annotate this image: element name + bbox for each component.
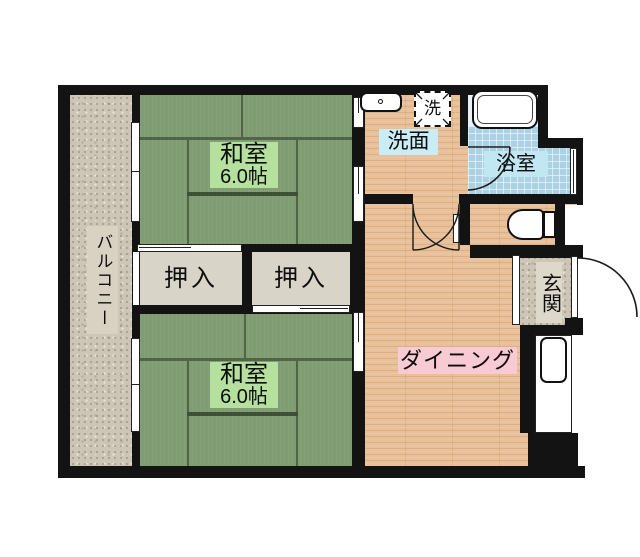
room-size: 6.0帖: [220, 167, 268, 188]
outside-area: [572, 335, 640, 433]
balcony-window-bottom: [131, 338, 140, 432]
toilet-tank: [543, 211, 556, 238]
entrance-step-strip: [512, 255, 520, 325]
tatami-line: [140, 137, 352, 140]
wall-dining-right: [520, 325, 535, 433]
japanese-room-bottom-label: 和室 6.0帖: [210, 362, 278, 408]
tatami-line: [187, 137, 189, 244]
closet-left-sliding-door: [137, 244, 242, 252]
tatami-line: [296, 137, 298, 244]
washroom-label: 洗面: [379, 129, 438, 155]
toilet-door-leaf: [453, 214, 460, 243]
sink-faucet-dot: [378, 99, 383, 104]
tatami-line: [244, 314, 246, 358]
bathroom-label: 浴室: [484, 151, 548, 177]
wall-bath-left: [460, 85, 468, 146]
bathtub: [472, 90, 538, 129]
room-name: 和室: [220, 142, 268, 167]
wall-entrance-north: [470, 245, 583, 258]
closet-back-strip: [133, 252, 139, 305]
room-name: 和室: [220, 362, 268, 387]
balcony-label: バルコニー: [87, 226, 118, 334]
wall-toilet-left: [460, 204, 470, 245]
meter-box: [540, 337, 567, 383]
wall-left: [58, 85, 70, 478]
room-size: 6.0帖: [220, 387, 268, 408]
dining-label: ダイニング: [398, 347, 517, 374]
wall-bath-step: [538, 138, 583, 148]
closet-right-label: 押入: [252, 264, 350, 294]
closet-right-sliding-door: [252, 305, 350, 313]
tatami-line: [187, 192, 298, 196]
japanese-room-top-label: 和室 6.0帖: [210, 142, 278, 188]
outside-area: [548, 85, 640, 138]
balcony-window-top: [131, 122, 140, 222]
tatami-line: [241, 95, 243, 137]
wall-bottom: [58, 466, 585, 478]
front-door-leaf: [571, 256, 578, 318]
entrance-label: 玄関: [536, 262, 562, 323]
wall-toilet-right: [555, 204, 565, 245]
tatami-line: [187, 412, 298, 416]
floor-plan: バルコニー 和室 6.0帖 和室 6.0帖 押入 押入 洗面 洗 浴室 玄関 ダ…: [0, 0, 640, 557]
toilet-bowl: [507, 209, 544, 240]
wall-washroom-south-right: [459, 194, 577, 204]
washer-label: 洗: [416, 96, 449, 122]
outside-area: [565, 205, 640, 245]
wall-bath-outer: [577, 148, 583, 205]
closet-left-label: 押入: [140, 264, 242, 294]
wall-corner-block: [528, 433, 578, 478]
